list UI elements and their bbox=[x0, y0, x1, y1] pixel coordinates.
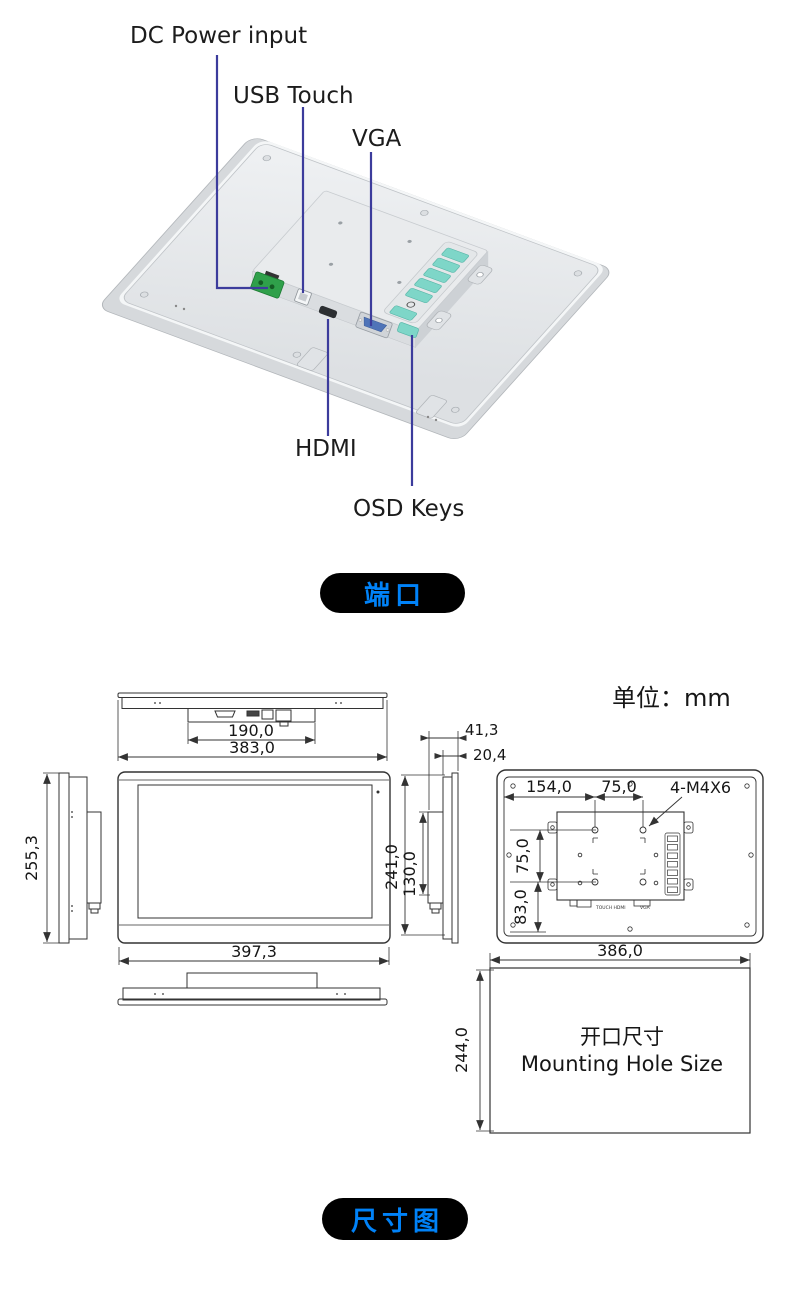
section-badge-ports-label: 端口 bbox=[359, 575, 426, 612]
vesa-holes bbox=[578, 827, 658, 885]
dim-hole-offset: 154,0 bbox=[526, 777, 572, 796]
bottom-view bbox=[118, 973, 387, 1005]
dim-box-height: 130,0 bbox=[400, 851, 419, 897]
rear-connector-text: TOUCH HDMI bbox=[595, 905, 626, 911]
label-vga: VGA bbox=[352, 126, 402, 152]
top-view: 190,0 383,0 bbox=[118, 693, 387, 761]
product-page: DC Power input USB Touch VGA HDMI OSD Ke… bbox=[0, 0, 790, 1312]
label-osd-keys: OSD Keys bbox=[353, 496, 464, 522]
rear-vga-text: VGA bbox=[640, 905, 651, 911]
left-side-view: 255,3 bbox=[22, 773, 101, 943]
cutout-title-en: Mounting Hole Size bbox=[521, 1052, 723, 1076]
dim-total-depth: 41,3 bbox=[465, 721, 498, 739]
rear-mount-ears bbox=[548, 822, 693, 890]
dim-front-width: 397,3 bbox=[231, 942, 277, 961]
dim-rear-height: 241,0 bbox=[382, 844, 401, 890]
product-rear-illustration: DC Power input USB Touch VGA HDMI OSD Ke… bbox=[0, 0, 790, 660]
section-badge-ports: 端口 bbox=[320, 573, 465, 613]
label-hdmi: HDMI bbox=[295, 436, 357, 462]
dim-screw-spec: 4-M4X6 bbox=[670, 778, 731, 797]
rear-screws bbox=[507, 782, 753, 931]
dim-cutout-width: 386,0 bbox=[597, 941, 643, 960]
dim-hole-pitch-v: 75,0 bbox=[513, 838, 532, 874]
dim-front-depth: 20,4 bbox=[473, 746, 506, 764]
section-badge-dimensions: 尺寸图 bbox=[322, 1198, 468, 1240]
dim-panel-height: 255,3 bbox=[22, 835, 41, 881]
label-dc-power: DC Power input bbox=[130, 23, 307, 49]
rear-view: TOUCH HDMI VGA 154,0 75,0 4-M4X6 75,0 83… bbox=[497, 770, 763, 943]
dim-cutout-height: 244,0 bbox=[452, 1027, 471, 1073]
dim-hole-pitch-h: 75,0 bbox=[601, 777, 637, 796]
front-view: 397,3 bbox=[118, 772, 390, 965]
dim-bottom-offset: 83,0 bbox=[511, 889, 530, 925]
cutout-title-cn: 开口尺寸 bbox=[580, 1025, 664, 1049]
unit-note: 单位：mm bbox=[612, 684, 731, 712]
section-badge-dimensions-label: 尺寸图 bbox=[346, 1201, 444, 1238]
mounting-cutout: 386,0 244,0 开口尺寸 Mounting Hole Size bbox=[452, 941, 750, 1133]
dim-body-width: 383,0 bbox=[229, 738, 275, 757]
label-usb-touch: USB Touch bbox=[233, 83, 354, 109]
rear-osd-strip bbox=[665, 833, 680, 895]
right-side-view: 241,0 130,0 41,3 20,4 bbox=[382, 721, 506, 943]
